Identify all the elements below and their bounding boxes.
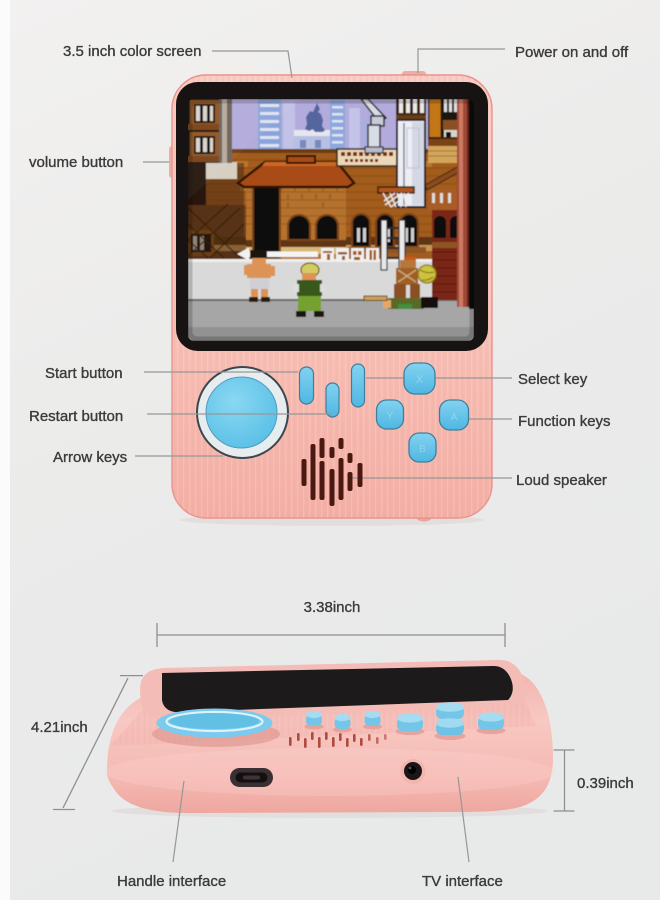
svg-text:Arrow keys: Arrow keys (53, 449, 127, 466)
svg-text:Power on and off: Power on and off (515, 44, 629, 61)
svg-text:Function keys: Function keys (518, 413, 611, 430)
svg-text:Loud speaker: Loud speaker (516, 472, 607, 489)
svg-text:0.39inch: 0.39inch (577, 775, 634, 792)
svg-text:3.38inch: 3.38inch (304, 599, 361, 616)
svg-text:volume button: volume button (29, 154, 123, 171)
svg-text:B: B (419, 444, 426, 455)
svg-text:TV interface: TV interface (422, 873, 503, 890)
svg-text:4.21inch: 4.21inch (31, 719, 88, 736)
svg-text:A: A (451, 412, 458, 423)
svg-text:Start button: Start button (45, 365, 123, 382)
svg-text:Y: Y (387, 411, 394, 422)
svg-text:Handle interface: Handle interface (117, 873, 226, 890)
svg-text:Select key: Select key (518, 371, 588, 388)
svg-text:Restart button: Restart button (29, 408, 123, 425)
svg-text:X: X (416, 374, 424, 386)
svg-text:3.5 inch color screen: 3.5 inch color screen (63, 43, 201, 60)
